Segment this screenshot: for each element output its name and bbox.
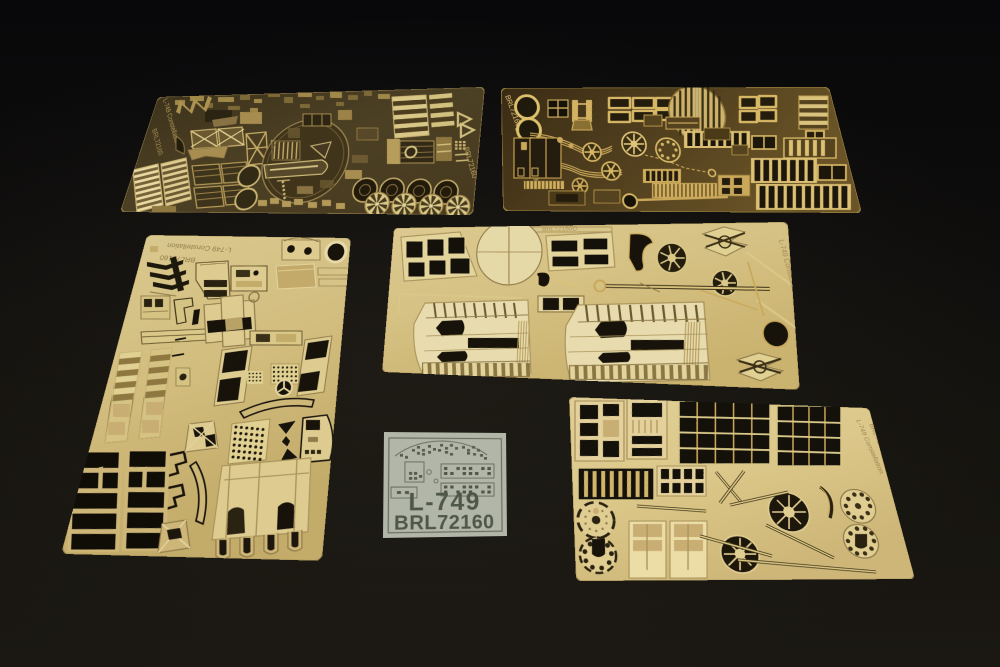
svg-text:BRL72160: BRL72160 [394,512,495,535]
